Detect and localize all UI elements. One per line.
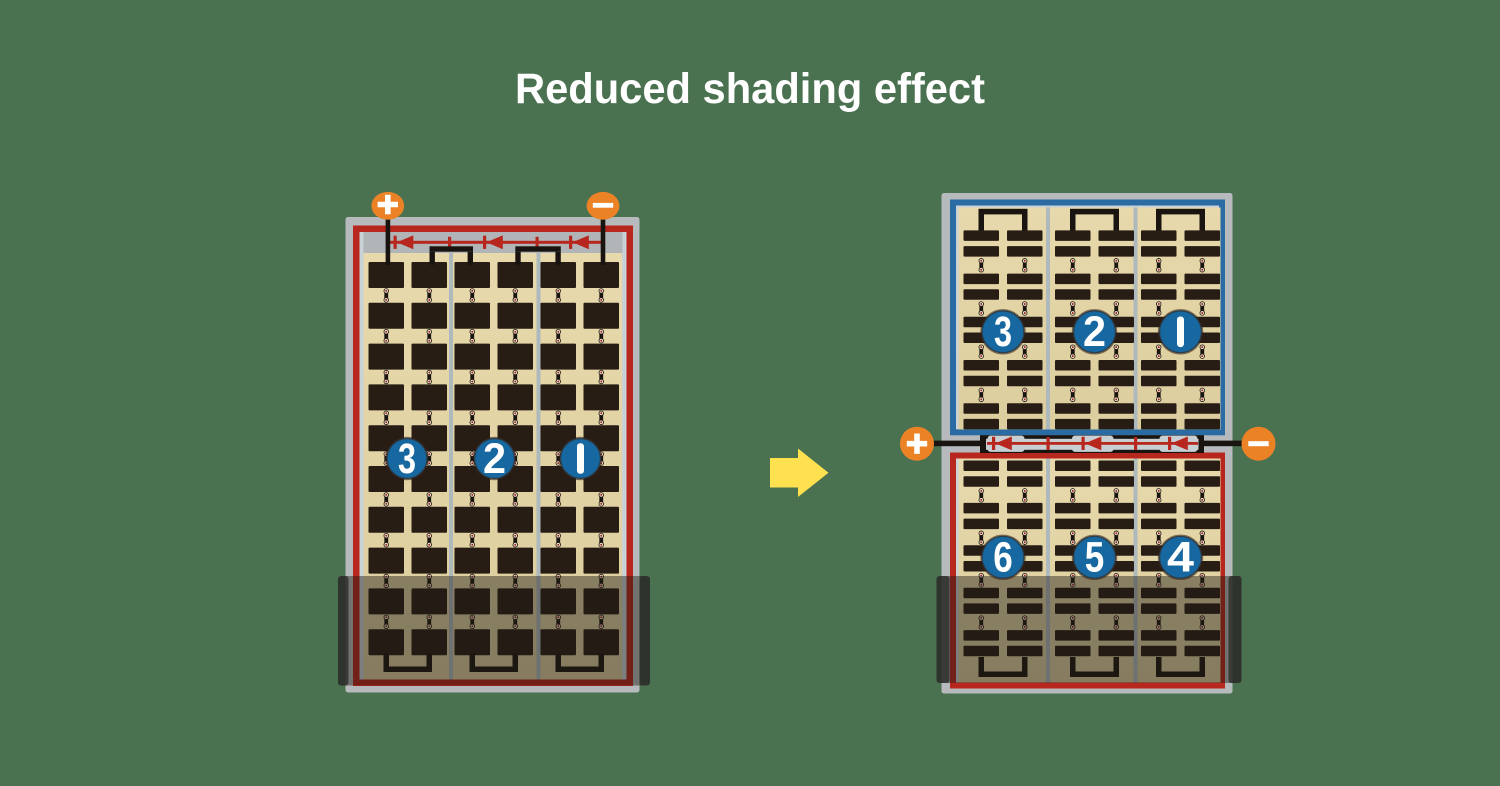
svg-text:Reduced shading effect: Reduced shading effect [515,66,985,113]
svg-text:6: 6 [993,535,1013,582]
svg-text:3: 3 [994,309,1012,356]
svg-text:5: 5 [1085,535,1105,582]
svg-text:2: 2 [1083,309,1106,356]
svg-text:4: 4 [1167,535,1194,582]
svg-text:2: 2 [483,436,506,483]
svg-text:3: 3 [398,436,416,483]
